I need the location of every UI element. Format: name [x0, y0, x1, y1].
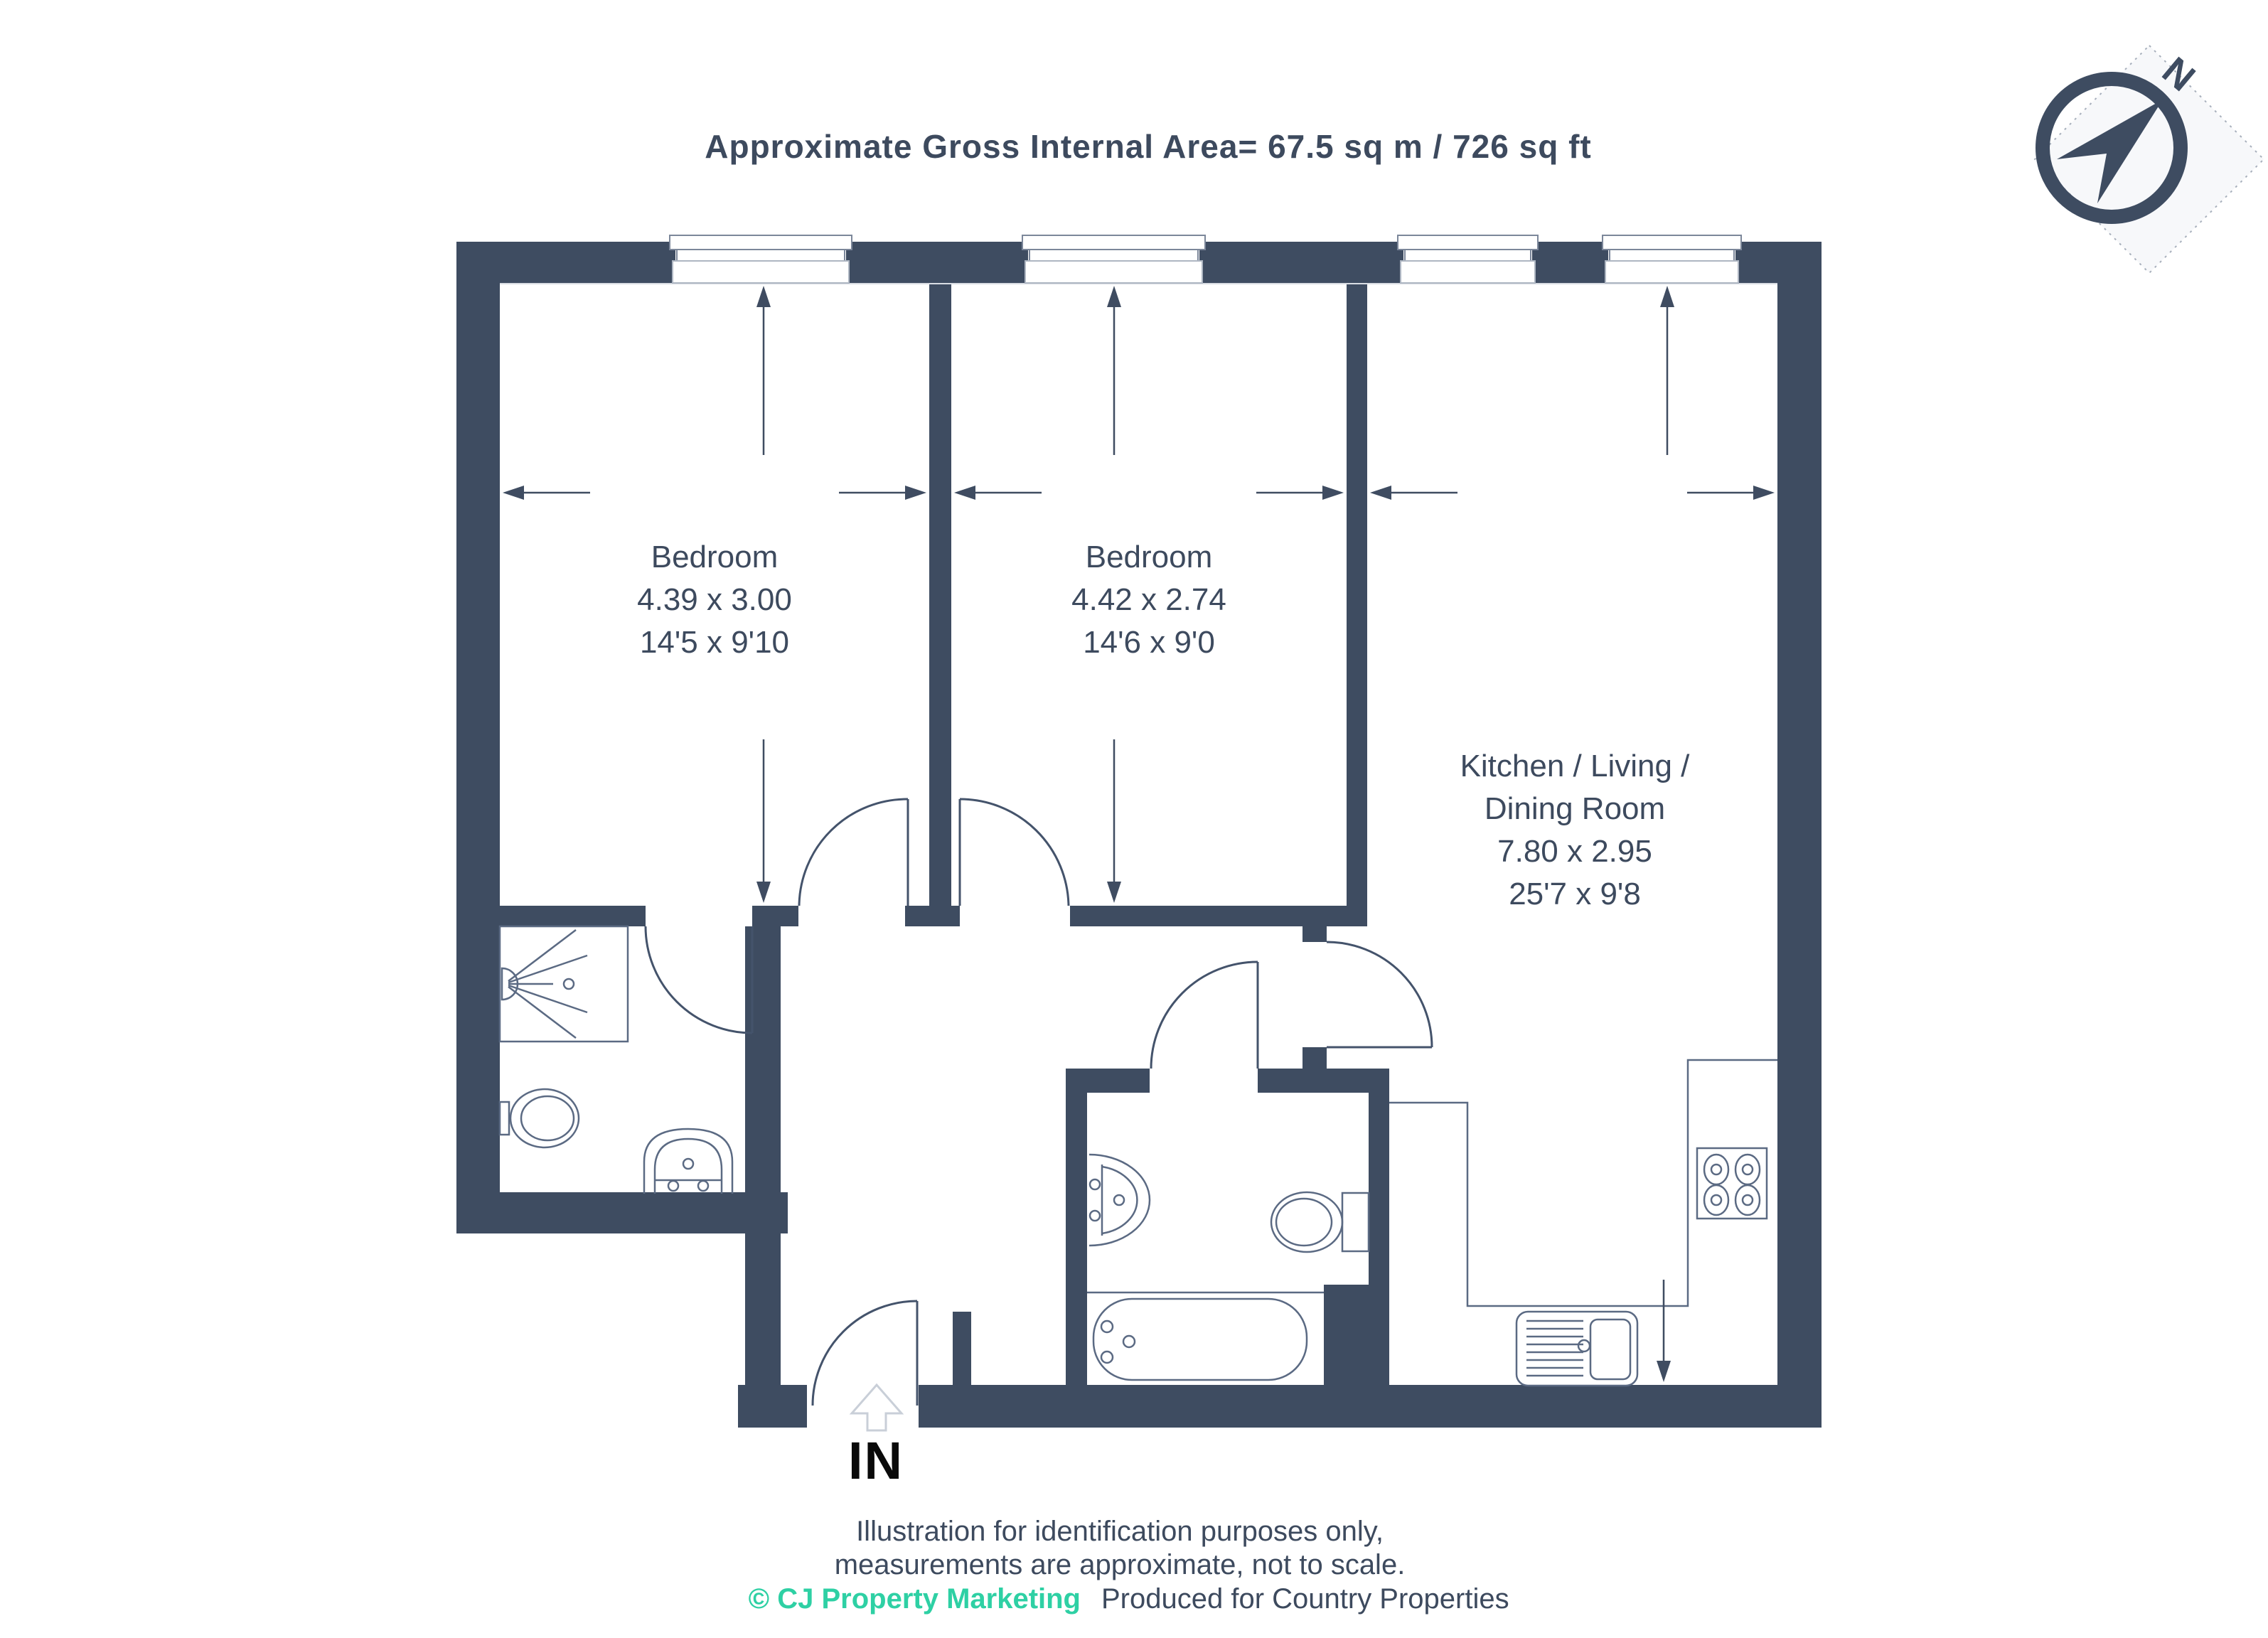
window-icon [1022, 235, 1205, 283]
bathtub-icon [1087, 1292, 1324, 1380]
kitchen-counter [1389, 1060, 1777, 1306]
page-title: Approximate Gross Internal Area= 67.5 sq… [705, 128, 1591, 165]
room-imperial: 25'7 x 9'8 [1509, 877, 1641, 911]
room-name: Bedroom [1086, 540, 1213, 574]
dim-arrow-up-icon [1660, 286, 1674, 455]
toilet-icon [500, 1089, 579, 1147]
room-imperial: 14'6 x 9'0 [1083, 625, 1215, 660]
dim-arrow-up-icon [1107, 286, 1121, 455]
compass-icon: N [2035, 45, 2264, 273]
door-bathroom [1151, 962, 1258, 1069]
room-metric: 7.80 x 2.95 [1497, 834, 1652, 869]
window-icon [1398, 235, 1538, 283]
floorplan-page: Approximate Gross Internal Area= 67.5 sq… [0, 0, 2268, 1638]
room-name: Kitchen / Living / [1460, 749, 1691, 783]
room-labels: Bedroom 4.39 x 3.00 14'5 x 9'10 Bedroom … [637, 540, 1690, 911]
credit-text: Produced for Country Properties [1101, 1583, 1509, 1615]
door-shower-room [646, 926, 752, 1033]
dim-arrow-down-icon [756, 739, 771, 903]
room-imperial: 14'5 x 9'10 [640, 625, 789, 660]
dim-arrow-right-icon [1256, 486, 1344, 500]
kitchen-label: Kitchen / Living / Dining Room 7.80 x 2.… [1460, 749, 1691, 911]
floorplan-canvas: Approximate Gross Internal Area= 67.5 sq… [0, 0, 2268, 1638]
door-entrance [813, 1301, 917, 1406]
bedroom1-label: Bedroom 4.39 x 3.00 14'5 x 9'10 [637, 540, 792, 660]
window-icon [1603, 235, 1741, 283]
bedroom2-label: Bedroom 4.42 x 2.74 14'6 x 9'0 [1071, 540, 1226, 660]
dim-arrow-up-icon [756, 286, 771, 455]
dim-arrow-left-icon [954, 486, 1042, 500]
entry-direction-arrow-icon [852, 1385, 902, 1430]
room-name: Bedroom [651, 540, 779, 574]
entrance: IN [848, 1385, 904, 1490]
room-metric: 4.42 x 2.74 [1071, 582, 1226, 617]
door-bedroom2 [960, 799, 1069, 906]
room-name: Dining Room [1485, 791, 1665, 826]
dim-arrow-right-icon [1687, 486, 1775, 500]
door-bedroom1 [799, 799, 908, 906]
dim-arrow-down-icon [1107, 739, 1121, 903]
room-metric: 4.39 x 3.00 [637, 582, 792, 617]
dim-arrow-left-icon [1370, 486, 1457, 500]
entrance-label: IN [848, 1431, 904, 1490]
hob-icon [1697, 1148, 1767, 1219]
disclaimer-line2: measurements are approximate, not to sca… [835, 1549, 1406, 1580]
sink-icon [1517, 1312, 1637, 1386]
dim-arrow-right-icon [839, 486, 926, 500]
basin-icon [644, 1129, 732, 1194]
kitchen-fixtures [1389, 1060, 1777, 1386]
shower-icon [500, 926, 628, 1042]
window-icon [670, 235, 852, 283]
dim-arrow-left-icon [503, 486, 590, 500]
credit-brand: © CJ Property Marketing [749, 1583, 1081, 1615]
door-kitchen [1327, 942, 1432, 1047]
shower-room-fixtures [500, 926, 732, 1194]
dim-arrow-down-icon [1657, 1280, 1671, 1382]
toilet-icon [1271, 1192, 1369, 1252]
footer: Illustration for identification purposes… [749, 1516, 1509, 1615]
basin-icon [1089, 1155, 1150, 1246]
disclaimer-line1: Illustration for identification purposes… [856, 1516, 1384, 1547]
